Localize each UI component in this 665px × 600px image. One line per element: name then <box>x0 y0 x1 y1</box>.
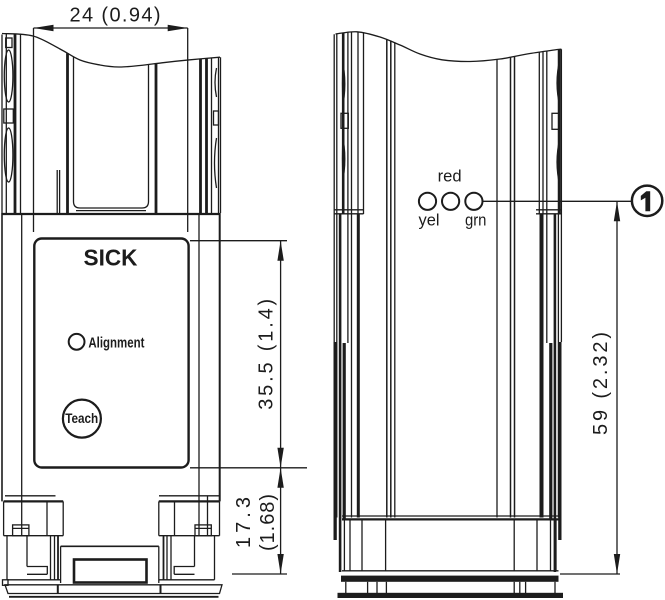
svg-text:SICK: SICK <box>84 244 138 270</box>
svg-text:red: red <box>438 167 462 185</box>
svg-text:Alignment: Alignment <box>88 336 144 352</box>
svg-text:(1.68): (1.68) <box>257 494 279 551</box>
svg-text:35.5 (1.4): 35.5 (1.4) <box>256 299 278 410</box>
svg-text:yel: yel <box>419 212 440 230</box>
svg-text:grn: grn <box>465 212 487 230</box>
svg-text:Teach: Teach <box>65 410 98 426</box>
svg-text:17.3: 17.3 <box>233 497 255 548</box>
svg-text:59 (2.32): 59 (2.32) <box>590 332 612 435</box>
svg-text:24 (0.94): 24 (0.94) <box>70 5 161 27</box>
